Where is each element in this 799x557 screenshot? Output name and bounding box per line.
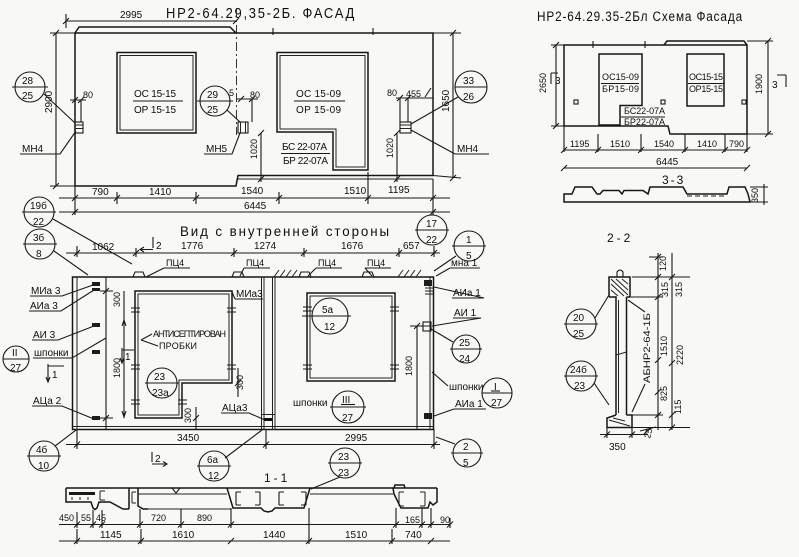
- svg-text:455: 455: [406, 89, 421, 99]
- svg-text:ПЦ4: ПЦ4: [367, 258, 385, 268]
- svg-text:ОР 15-09: ОР 15-09: [296, 105, 341, 116]
- svg-text:120: 120: [658, 256, 668, 271]
- svg-text:шпонки: шпонки: [449, 382, 483, 393]
- svg-text:1540: 1540: [241, 186, 264, 197]
- svg-text:АИ 3: АИ 3: [33, 330, 56, 341]
- svg-text:790: 790: [729, 139, 744, 149]
- svg-text:ПЦ4: ПЦ4: [246, 258, 264, 268]
- svg-text:5а: 5а: [322, 305, 334, 316]
- svg-text:АНТИСЕПТИРОВАН: АНТИСЕПТИРОВАН: [153, 329, 226, 339]
- svg-text:1195: 1195: [570, 139, 589, 149]
- svg-text:НР2-64.29,35-2Б. ФАСАД: НР2-64.29,35-2Б. ФАСАД: [166, 5, 356, 22]
- svg-text:АИа 1: АИа 1: [455, 399, 483, 410]
- svg-text:1: 1: [466, 235, 472, 246]
- svg-text:1510: 1510: [610, 139, 630, 149]
- svg-text:2650: 2650: [538, 73, 548, 93]
- svg-text:1510: 1510: [344, 186, 367, 197]
- svg-text:23: 23: [574, 381, 586, 392]
- svg-text:АБНР2-64-1Б: АБНР2-64-1Б: [642, 313, 652, 383]
- svg-text:2: 2: [463, 442, 469, 453]
- svg-text:1: 1: [52, 370, 58, 381]
- svg-text:24б: 24б: [570, 364, 587, 376]
- svg-text:1020: 1020: [385, 138, 395, 158]
- svg-text:12: 12: [208, 471, 220, 482]
- svg-text:1610: 1610: [172, 530, 195, 541]
- svg-text:2995: 2995: [345, 433, 368, 444]
- svg-text:ОС 15-15: ОС 15-15: [134, 89, 176, 100]
- svg-text:2995: 2995: [120, 10, 143, 21]
- svg-text:80: 80: [387, 88, 397, 98]
- svg-text:790: 790: [92, 187, 109, 198]
- svg-text:17: 17: [426, 219, 438, 230]
- svg-text:1510: 1510: [345, 530, 368, 541]
- svg-text:890: 890: [197, 513, 212, 523]
- svg-text:10: 10: [38, 461, 50, 472]
- svg-text:II: II: [12, 348, 18, 359]
- svg-text:1800: 1800: [112, 358, 122, 378]
- svg-text:4б: 4б: [36, 444, 48, 456]
- svg-text:БР22-07А: БР22-07А: [624, 117, 665, 127]
- svg-text:1410: 1410: [149, 187, 172, 198]
- svg-text:ОР15-15: ОР15-15: [689, 84, 723, 94]
- svg-text:1510: 1510: [659, 336, 669, 356]
- svg-text:МН4: МН4: [457, 144, 479, 155]
- svg-text:БС22-07А: БС22-07А: [624, 106, 665, 116]
- svg-text:3: 3: [772, 80, 778, 91]
- svg-text:315: 315: [674, 282, 684, 297]
- svg-text:25: 25: [573, 329, 585, 340]
- svg-text:ОР 15-15: ОР 15-15: [134, 105, 176, 116]
- svg-text:Вид с внутренней стороны: Вид с внутренней стороны: [180, 223, 391, 239]
- svg-text:БР 22-07А: БР 22-07А: [283, 156, 328, 167]
- svg-text:2220: 2220: [675, 345, 685, 365]
- svg-text:300: 300: [235, 375, 245, 390]
- svg-text:1440: 1440: [263, 530, 286, 541]
- svg-text:ПЦ4: ПЦ4: [318, 258, 336, 268]
- svg-text:3: 3: [555, 76, 561, 87]
- svg-text:АЦа3: АЦа3: [222, 403, 248, 414]
- svg-text:1: 1: [125, 352, 131, 363]
- svg-text:19б: 19б: [30, 200, 47, 212]
- svg-text:АИа 1: АИа 1: [453, 288, 481, 299]
- svg-text:ОС15-09: ОС15-09: [602, 72, 639, 82]
- svg-text:27: 27: [342, 413, 354, 424]
- svg-text:20: 20: [573, 313, 585, 324]
- svg-text:315: 315: [660, 282, 670, 297]
- svg-text:1776: 1776: [181, 241, 204, 252]
- svg-text:450: 450: [59, 513, 74, 523]
- svg-text:350: 350: [750, 188, 760, 203]
- svg-text:2900: 2900: [44, 90, 55, 113]
- svg-text:1800: 1800: [404, 356, 414, 376]
- svg-text:12: 12: [324, 322, 336, 333]
- svg-text:29: 29: [207, 90, 219, 101]
- svg-text:шпонки: шпонки: [34, 348, 68, 359]
- svg-text:ПРОБКИ: ПРОБКИ: [159, 341, 197, 351]
- svg-text:ОС15-15: ОС15-15: [689, 72, 723, 82]
- svg-text:22: 22: [426, 235, 438, 246]
- svg-text:8: 8: [36, 249, 42, 260]
- svg-text:45: 45: [96, 513, 106, 523]
- svg-text:23: 23: [154, 372, 166, 383]
- svg-text:1676: 1676: [341, 241, 364, 252]
- svg-text:2-2: 2-2: [607, 231, 633, 245]
- svg-text:1410: 1410: [697, 139, 717, 149]
- svg-text:22: 22: [33, 217, 45, 228]
- svg-text:657: 657: [403, 241, 420, 252]
- svg-text:1020: 1020: [249, 139, 259, 159]
- svg-text:МИа 3: МИа 3: [31, 286, 61, 297]
- svg-text:740: 740: [405, 530, 422, 541]
- svg-text:1900: 1900: [754, 74, 764, 94]
- svg-text:6а: 6а: [207, 455, 219, 466]
- svg-text:28: 28: [22, 76, 34, 87]
- svg-text:24: 24: [459, 354, 471, 365]
- svg-text:26: 26: [463, 92, 475, 103]
- svg-text:300: 300: [112, 292, 122, 307]
- svg-text:АИ 1: АИ 1: [454, 308, 477, 319]
- svg-text:300: 300: [183, 408, 193, 423]
- svg-text:5: 5: [466, 251, 472, 262]
- svg-text:АЦа 2: АЦа 2: [33, 396, 62, 407]
- svg-text:шпонки: шпонки: [293, 398, 327, 409]
- svg-text:23: 23: [338, 452, 350, 463]
- svg-text:ОС 15-09: ОС 15-09: [296, 89, 341, 100]
- svg-text:825: 825: [659, 386, 669, 401]
- svg-text:23а: 23а: [152, 388, 169, 399]
- svg-text:1274: 1274: [254, 241, 277, 252]
- svg-text:3б: 3б: [33, 232, 45, 244]
- svg-text:80: 80: [250, 90, 260, 100]
- svg-text:1-1: 1-1: [264, 471, 290, 485]
- svg-text:80: 80: [83, 90, 93, 100]
- svg-text:6445: 6445: [656, 157, 679, 168]
- svg-text:1650: 1650: [441, 89, 452, 112]
- svg-text:2: 2: [156, 241, 162, 252]
- svg-text:БС 22-07А: БС 22-07А: [282, 142, 327, 153]
- svg-text:720: 720: [151, 513, 166, 523]
- svg-text:1145: 1145: [100, 530, 122, 541]
- svg-text:3450: 3450: [177, 433, 200, 444]
- svg-text:27: 27: [10, 363, 22, 374]
- svg-text:25: 25: [459, 338, 471, 349]
- svg-text:МН5: МН5: [206, 144, 228, 155]
- svg-text:165: 165: [405, 515, 420, 525]
- svg-text:115: 115: [673, 400, 683, 414]
- svg-text:90: 90: [440, 515, 450, 525]
- svg-text:350: 350: [609, 442, 626, 453]
- svg-text:27: 27: [491, 398, 503, 409]
- svg-text:3-3: 3-3: [662, 173, 685, 187]
- svg-text:АИа 3: АИа 3: [30, 301, 58, 312]
- svg-text:1540: 1540: [654, 139, 674, 149]
- svg-text:НР2-64.29.35-2Бл Схема Фасада: НР2-64.29.35-2Бл Схема Фасада: [537, 9, 743, 24]
- svg-text:БР15-09: БР15-09: [602, 84, 639, 94]
- svg-text:2: 2: [155, 454, 161, 465]
- svg-text:1195: 1195: [388, 185, 410, 196]
- svg-text:МИа3: МИа3: [236, 289, 263, 300]
- svg-text:25: 25: [207, 105, 219, 116]
- svg-text:55: 55: [81, 513, 91, 523]
- svg-text:мна 1: мна 1: [451, 258, 478, 269]
- svg-text:МН4: МН4: [22, 144, 44, 155]
- svg-text:6445: 6445: [244, 201, 267, 212]
- svg-text:33: 33: [463, 76, 475, 87]
- svg-text:5: 5: [463, 458, 469, 469]
- svg-text:ПЦ4: ПЦ4: [166, 258, 184, 268]
- svg-text:25: 25: [22, 91, 34, 102]
